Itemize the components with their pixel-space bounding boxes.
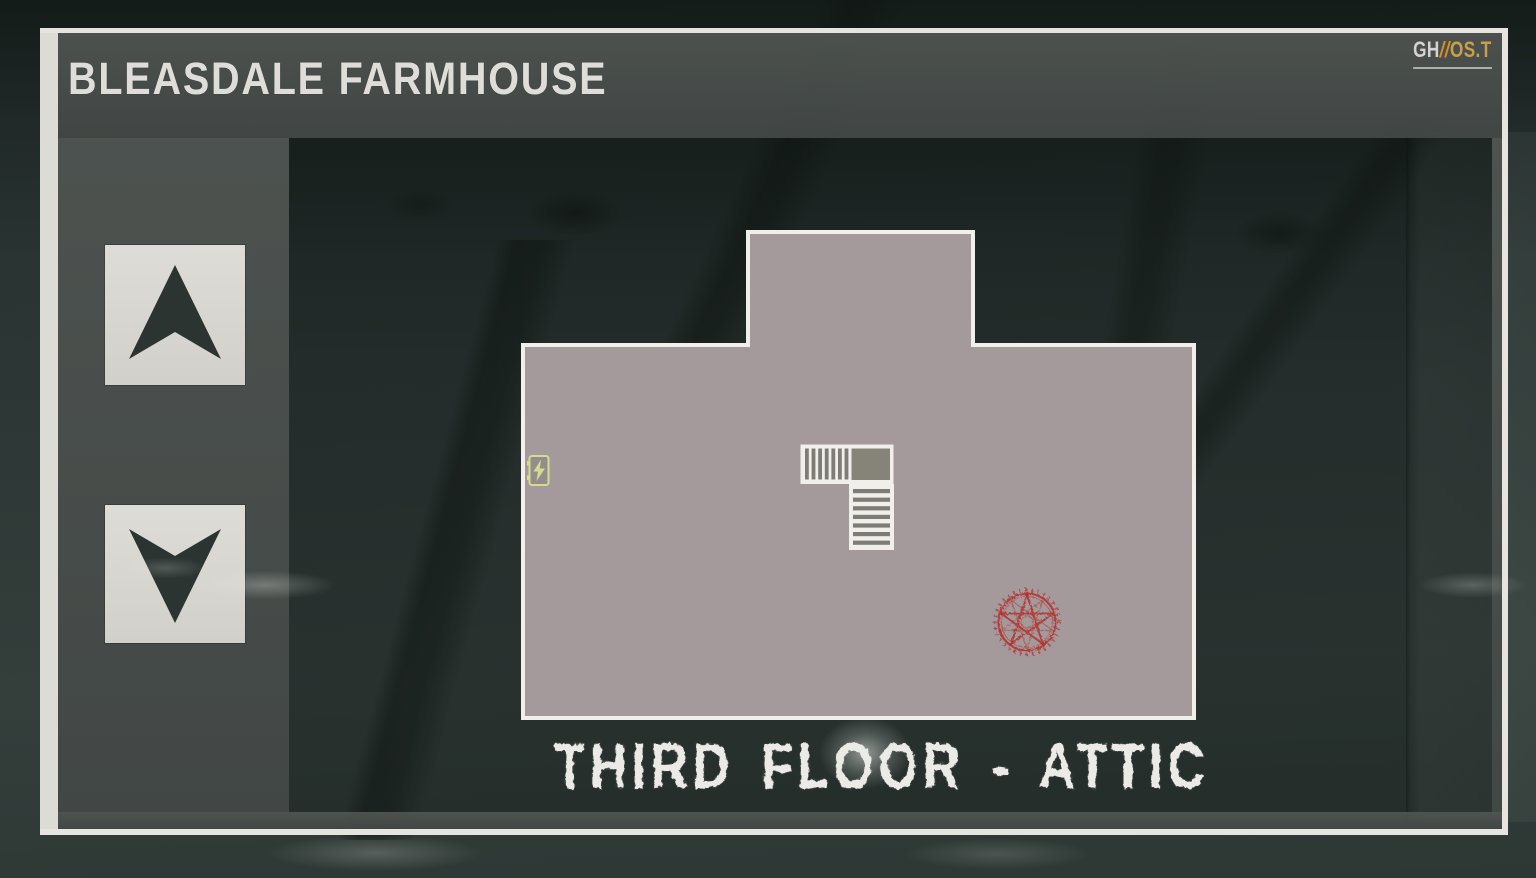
logo-suffix: OS.T [1450,37,1492,62]
logo-underline [1414,67,1492,69]
panel-right-strip [1492,138,1502,812]
panel-frame-bottom [40,829,1508,835]
logo-prefix: GH [1414,37,1441,62]
panel-frame-top [40,28,1508,33]
map-screen: BLEASDALE FARMHOUSE GH//OS.T [0,0,1536,878]
page-title: BLEASDALE FARMHOUSE [68,53,607,105]
panel-frame-right [1502,28,1508,835]
arrow-down-icon [105,505,245,643]
panel-sidebar-strip [58,138,289,812]
panel-bottom-strip [58,812,1502,829]
floor-label: THIRD FLOOR - ATTIC [472,729,1252,803]
ghost-os-logo: GH//OS.T [1414,37,1492,69]
ghost-os-logo-text: GH//OS.T [1414,37,1492,63]
floor-up-button[interactable] [105,245,245,385]
floor-down-button[interactable] [105,505,245,643]
map-viewport [289,138,1492,812]
floor-label-text: THIRD FLOOR - ATTIC [554,729,1210,803]
arrow-up-icon [105,245,245,385]
panel-frame-left [40,28,58,835]
